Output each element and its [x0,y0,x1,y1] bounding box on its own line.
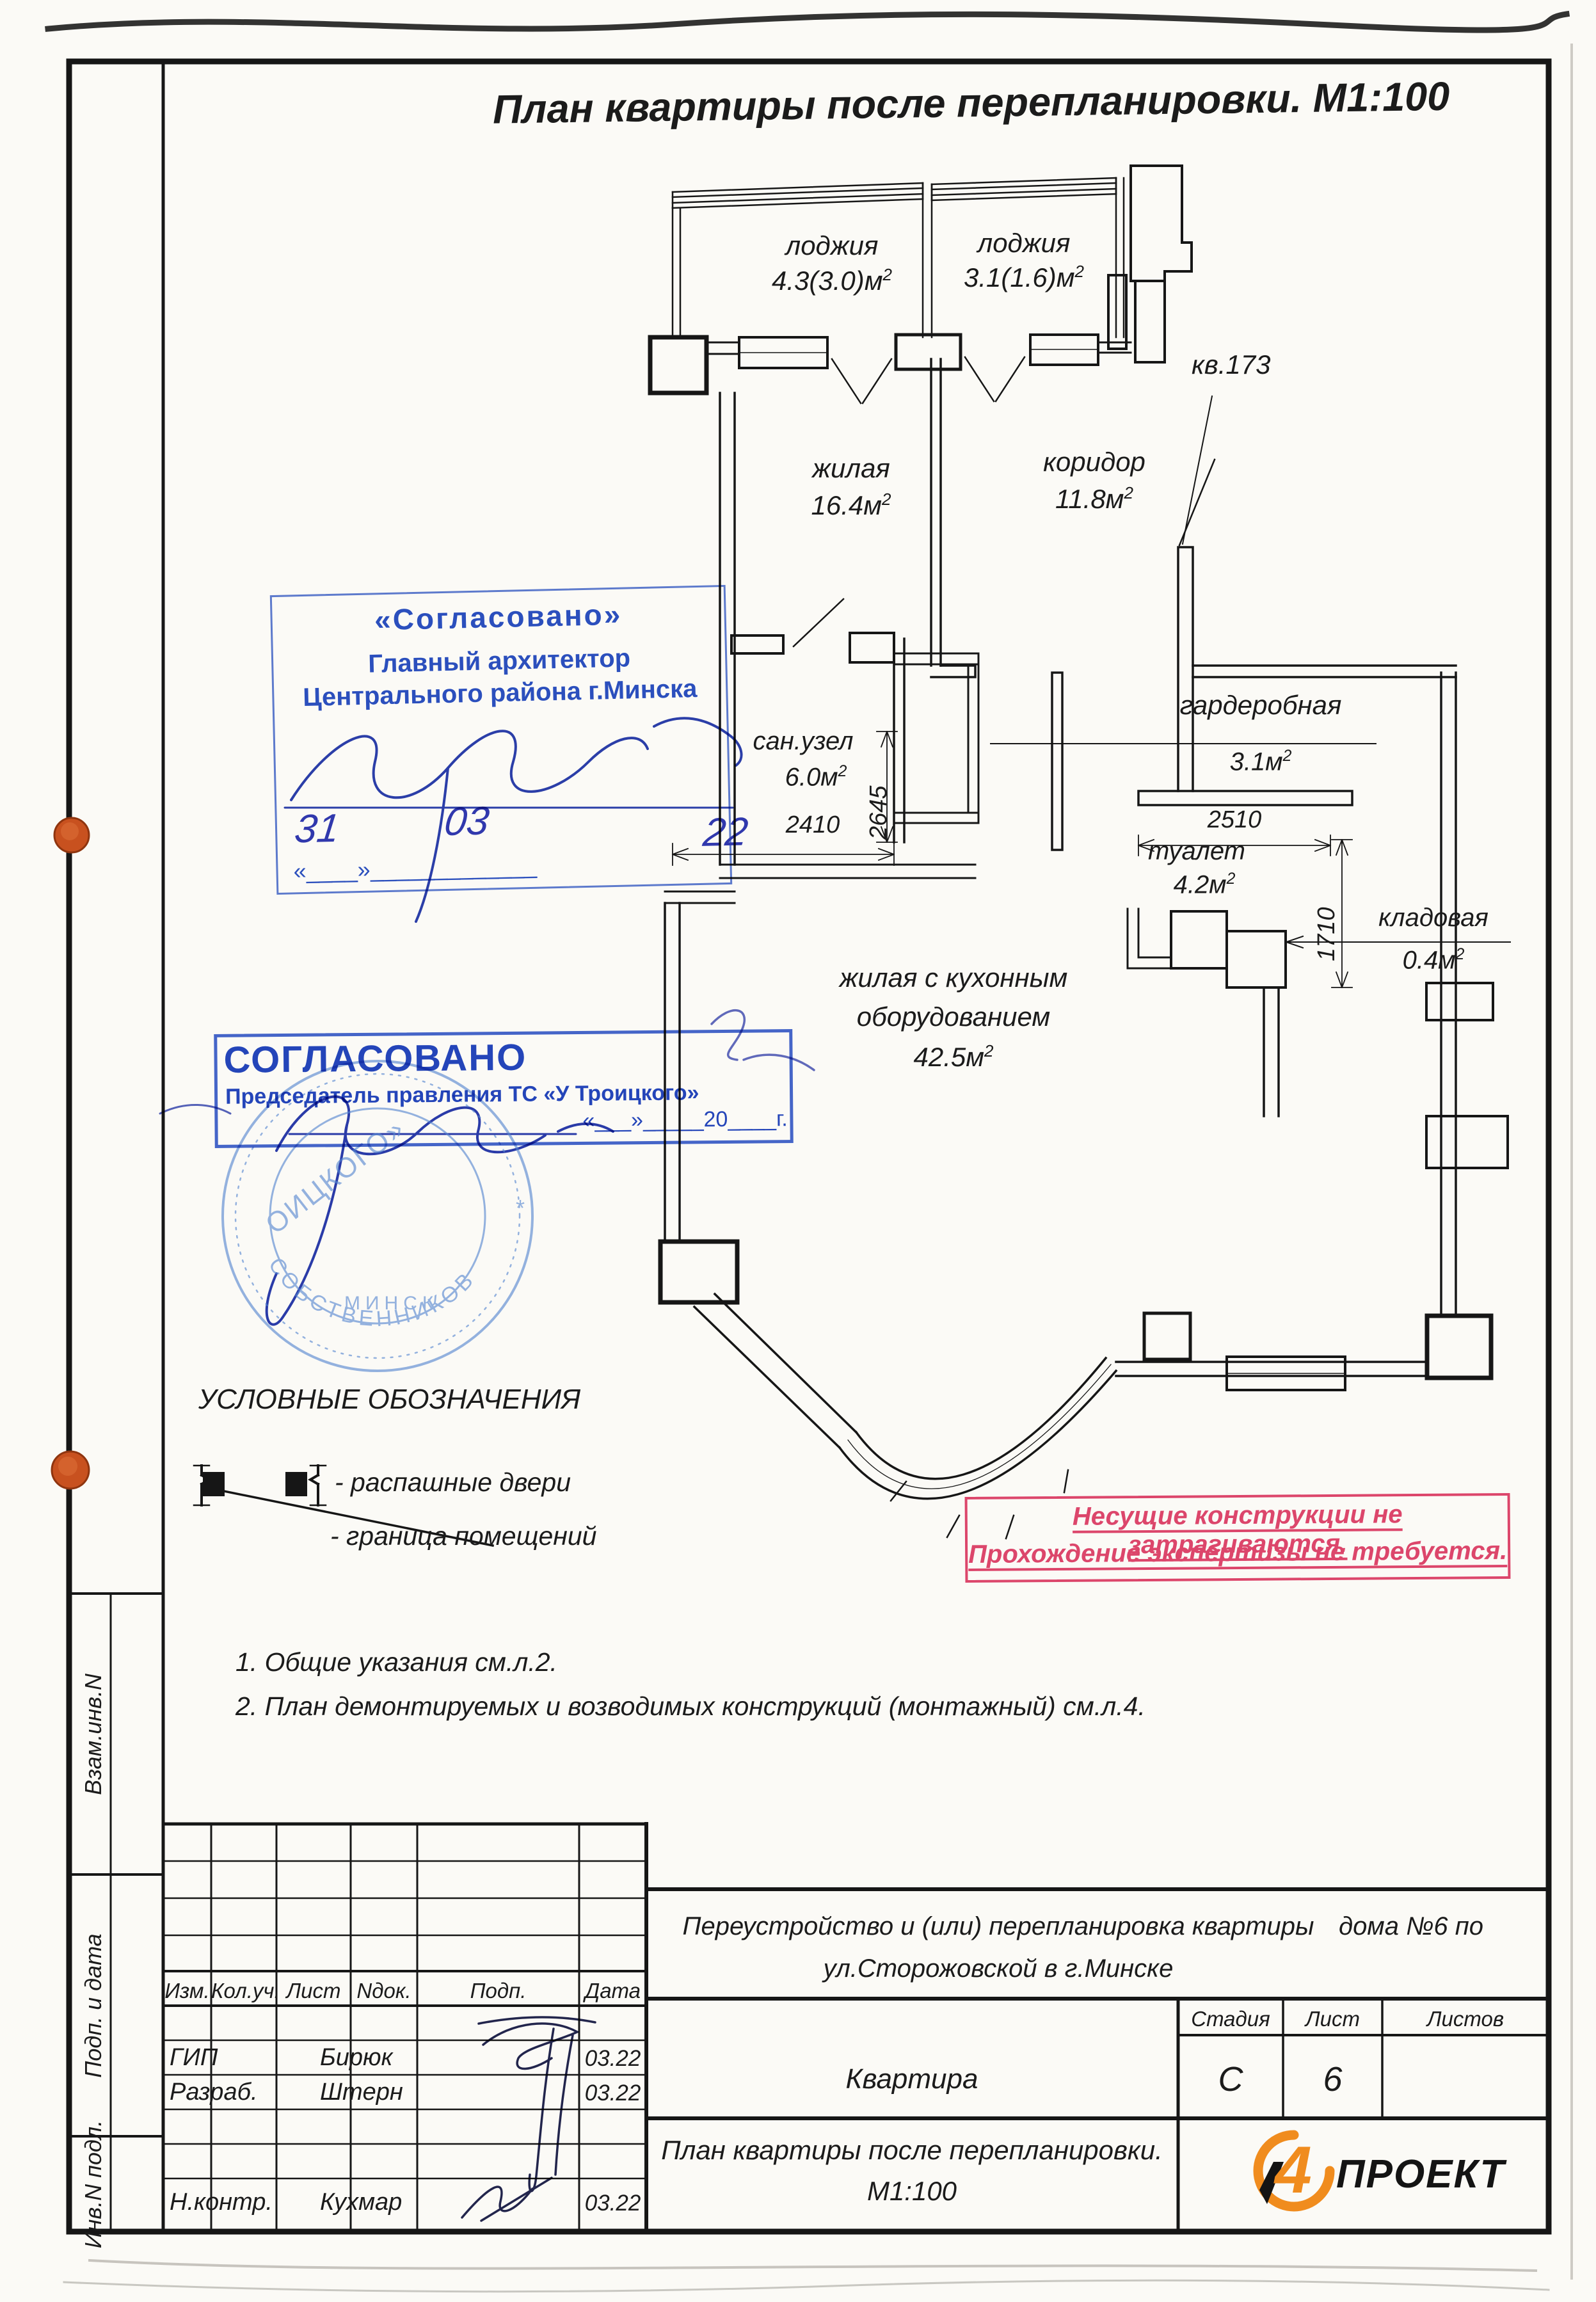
margin-label-vzam: Взам.инв.N [80,1674,107,1795]
room-kitchen-area: 42.5м2 [800,1041,1107,1073]
sheet-header: Лист [1283,2007,1382,2031]
room-kitchen-name2: оборудованием [800,1002,1107,1032]
architect-approval-stamp: «Согласовано» Главный архитектор Централ… [270,585,732,895]
room-bathroom-name: сан.узел [723,727,883,756]
room-toilet-area: 4.2м2 [1128,870,1281,899]
room-loggia2-name: лоджия [922,228,1126,259]
nkontr-signature [462,2178,552,2221]
row-razrab-role: Разраб. [170,2079,258,2106]
stamp1-date-blank: «____»_____________ [293,852,537,885]
col-koluch: Кол.уч. [211,1979,276,2003]
legend-item-boundary: - граница помещений [330,1521,596,1551]
col-izm: Изм. [163,1979,211,2003]
room-living-area: 16.4м2 [749,490,954,521]
row-nkontr-date: 03.22 [579,2191,646,2216]
stamp1-line1: «Согласовано» [272,595,724,639]
col-list: Лист [276,1979,351,2003]
room-living-name: жилая [749,453,954,484]
stamp2-title: СОГЛАСОВАНО [223,1036,527,1082]
stamp2-date-blank: «___»_____20____г. [582,1107,788,1133]
legend-item-doors: - распашные двери [335,1467,571,1498]
room-storage-name: кладовая [1337,904,1529,932]
seal-city-text: МИНСК [344,1293,438,1314]
room-corridor-area: 11.8м2 [992,483,1197,515]
project-line1b: дома №6 по [1334,1912,1488,1941]
room-loggia1-area: 4.3(3.0)м2 [730,265,934,296]
neighbor-apartment-label: кв.173 [1192,349,1271,380]
stamp1-line3: Центрального района г.Минска [274,674,726,713]
stamp1-hand-year: 22 [701,809,750,856]
stamp2-subtitle: Председатель правления ТС «У Троицкого» [225,1080,699,1109]
row-gip-date: 03.22 [579,2046,646,2072]
row-razrab-name: Штерн [320,2079,403,2106]
company-logo: 4 ПРОЕКТ [1235,2126,1542,2228]
row-nkontr-role: Н.контр. [170,2189,273,2216]
drawing-title-line2: М1:100 [659,2176,1165,2207]
room-corridor-name: коридор [992,447,1197,477]
col-podp: Подп. [417,1979,579,2003]
room-kitchen-name1: жилая с кухонным [800,963,1107,993]
logo-digit: 4 [1273,2133,1312,2207]
seal-star: * [516,1195,525,1221]
note-2: 2. План демонтируемых и возводимых конст… [235,1691,1145,1722]
row-razrab-date: 03.22 [579,2081,646,2106]
dim-2510: 2510 [1138,806,1330,834]
sheets-header: Листов [1382,2007,1549,2031]
row-gip-name: Бирюк [320,2044,393,2072]
room-toilet-name: туалет [1120,837,1273,866]
room-loggia2-area: 3.1(1.6)м2 [922,262,1126,293]
sheet-value: 6 [1283,2059,1382,2099]
row-gip-role: ГИП [170,2044,218,2072]
row-nkontr-name: Кухмар [320,2189,402,2216]
room-wardrobe-name: гардеробная [1145,690,1376,721]
col-ndok: Nдок. [351,1979,417,2003]
stage-header: Стадия [1178,2007,1283,2031]
col-data: Дата [579,1979,646,2003]
legend-title: УСЛОВНЫЕ ОБОЗНАЧЕНИЯ [198,1384,580,1416]
scanned-drawing-sheet: СОБСТВЕННИКОВ МИНСК ОИЦКОГО» * План квар… [0,0,1596,2302]
project-line2: ул.Сторожовской в г.Минске [704,1954,1293,1983]
notice-line-2: Прохождение экспертизы не требуется. [968,1537,1508,1569]
object-label: Квартира [784,2063,1040,2095]
dim-1710: 1710 [1313,907,1341,961]
note-1: 1. Общие указания см.л.2. [235,1647,557,1677]
stage-value: С [1178,2059,1283,2099]
room-storage-area: 0.4м2 [1350,946,1517,975]
room-loggia1-name: лоджия [730,230,934,261]
drawing-title-line1: План квартиры после перепланировки. [659,2135,1165,2166]
notice-box: Несущие конструкции не затрагиваются. Пр… [965,1493,1511,1583]
association-approval-stamp: СОГЛАСОВАНО Председатель правления ТС «У… [214,1029,794,1148]
logo-text: ПРОЕКТ [1336,2152,1507,2196]
project-line1a: Переустройство и (или) перепланировка кв… [666,1912,1331,1941]
stamp1-hand-day: 31 [292,806,342,852]
margin-label-podp: Подп. и дата [80,1933,107,2077]
margin-label-inv: Инв.N подл. [80,2120,107,2248]
stamp1-hand-month: 03 [442,798,491,845]
room-wardrobe-area: 3.1м2 [1145,747,1376,776]
gip-signature [479,2017,595,2191]
